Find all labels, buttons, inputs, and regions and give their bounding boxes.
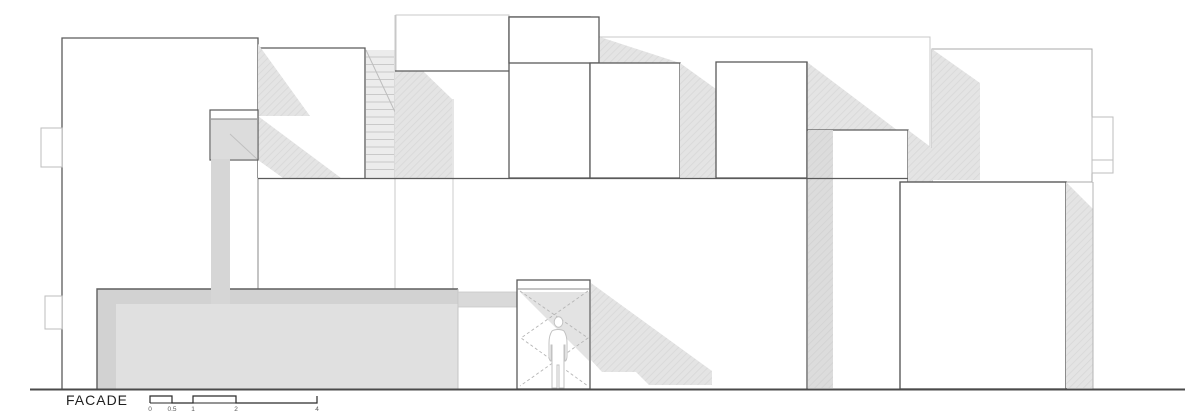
scale-tick-2: 2 xyxy=(234,406,238,413)
stairs xyxy=(366,15,395,289)
scale-tick-4: 4 xyxy=(315,406,319,413)
shadow-band-block-j xyxy=(1066,182,1093,388)
shadow-band-party-wall xyxy=(808,130,833,388)
figure-head xyxy=(554,317,563,327)
scale-tick-05: 0.5 xyxy=(167,406,176,413)
door-cast-shadow xyxy=(591,283,712,385)
scale-tick-0: 0 xyxy=(148,406,152,413)
tower-c-cap xyxy=(509,17,599,63)
tower-e xyxy=(716,62,807,178)
entrance xyxy=(517,280,712,389)
parapet-band xyxy=(458,292,517,307)
left-protrusion-lower xyxy=(45,296,62,329)
right-protrusion xyxy=(1092,117,1113,173)
title-block: FACADE 0 0.5 1 2 4 xyxy=(66,392,319,413)
back-volume-top-left xyxy=(396,15,509,71)
elevation-canvas: FACADE 0 0.5 1 2 4 xyxy=(0,0,1200,414)
block-j xyxy=(900,182,1093,389)
scale-bar: 0 0.5 1 2 4 xyxy=(148,396,319,413)
block-j-outline xyxy=(900,182,1066,389)
drawing-title: FACADE xyxy=(66,392,128,408)
roof-box xyxy=(210,110,258,160)
stairs-fill xyxy=(366,50,395,178)
shadow-band-roof-box-lower xyxy=(211,159,230,304)
left-protrusion-upper xyxy=(41,128,62,167)
facade-elevation-drawing: FACADE 0 0.5 1 2 4 xyxy=(0,0,1200,414)
base-wall-inner xyxy=(116,304,458,389)
tower-d xyxy=(590,63,680,178)
scale-tick-1: 1 xyxy=(191,406,195,413)
scale-bar-profile xyxy=(150,396,317,403)
shadow-band-stairs xyxy=(395,71,452,178)
